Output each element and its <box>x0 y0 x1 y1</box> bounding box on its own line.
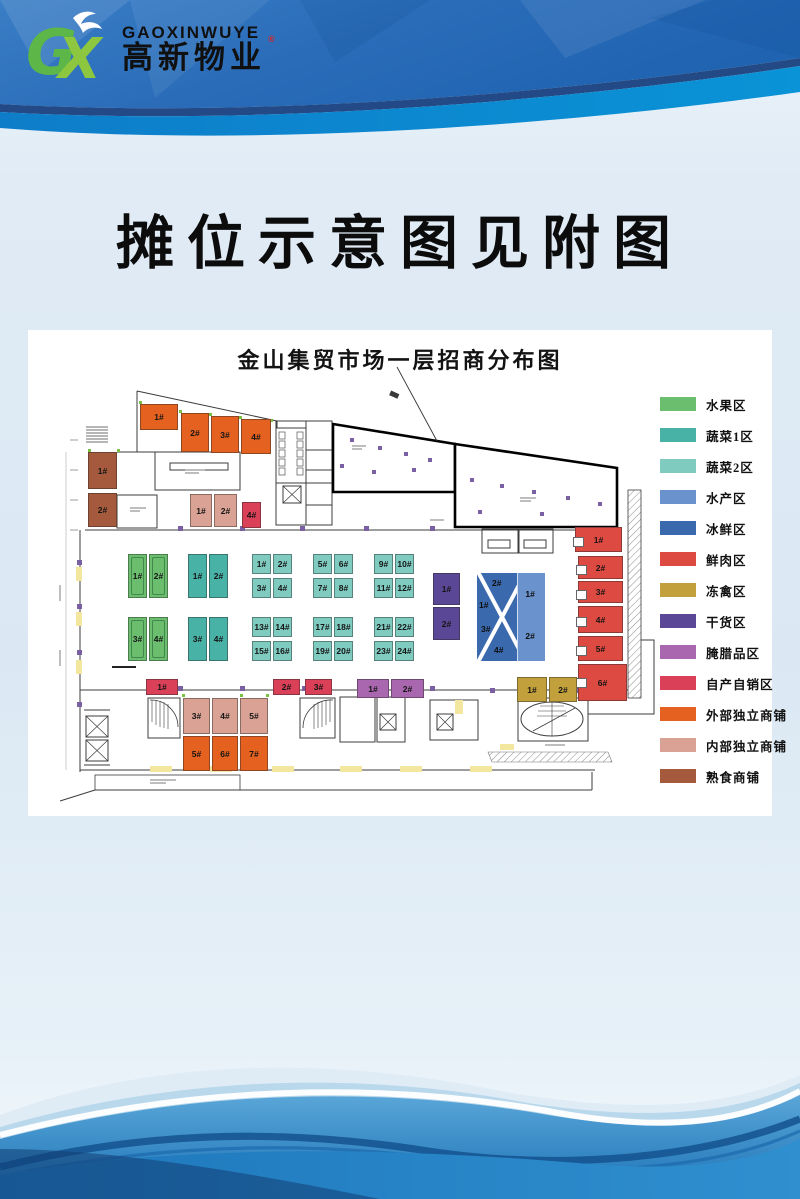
stall-fruit-1: 1# <box>128 554 147 598</box>
legend-label: 冻禽区 <box>706 581 747 600</box>
legend-label: 熟食商铺 <box>706 767 760 786</box>
legend-swatch <box>660 459 696 473</box>
stall-veg2-2: 2# <box>273 554 292 574</box>
stall-veg2-20: 20# <box>334 641 353 661</box>
stall-self-1: 1# <box>146 679 178 695</box>
trademark-mark: ® <box>268 34 280 44</box>
stall-icefresh-1: 1# <box>479 600 488 610</box>
stall-icefresh-4: 4# <box>494 645 503 655</box>
stall-cooked-2: 2# <box>88 493 117 527</box>
stall-ext-1: 1# <box>140 404 178 430</box>
stall-cured-2: 2# <box>391 679 424 698</box>
legend-swatch <box>660 490 696 504</box>
stall-veg2-8: 8# <box>334 578 353 598</box>
legend-swatch <box>660 397 696 411</box>
stall-veg1-3: 3# <box>188 617 207 661</box>
stall-veg2-14: 14# <box>273 617 292 637</box>
stall-icefresh-3: 3# <box>481 624 490 634</box>
stall-int-2: 2# <box>214 494 237 527</box>
legend-label: 自产自销区 <box>706 674 774 693</box>
footer-wave-graphic <box>0 999 800 1199</box>
page-title: 摊位示意图见附图 <box>0 196 800 280</box>
stall-veg2-17: 17# <box>313 617 332 637</box>
stall-veg2-15: 15# <box>252 641 271 661</box>
legend-swatch <box>660 769 696 783</box>
stall-poultry-1: 1# <box>517 677 547 702</box>
legend-item: 外部独立商铺 <box>660 707 787 721</box>
legend-item: 冻禽区 <box>660 583 787 597</box>
legend-label: 冰鲜区 <box>706 519 747 538</box>
stall-int-4: 4# <box>212 698 238 734</box>
legend-label: 水产区 <box>706 488 747 507</box>
legend-item: 水果区 <box>660 397 787 411</box>
legend-item: 自产自销区 <box>660 676 787 690</box>
legend-swatch <box>660 614 696 628</box>
stall-poultry-2: 2# <box>549 677 577 702</box>
svg-text:X: X <box>55 27 104 88</box>
legend-item: 鲜肉区 <box>660 552 787 566</box>
legend: 水果区 蔬菜1区 蔬菜2区 水产区 冰鲜区 鲜肉区 冻禽区 干货区 腌腊品区 自… <box>660 397 787 783</box>
legend-swatch <box>660 738 696 752</box>
stall-ext-5: 5# <box>183 736 210 771</box>
stall-icefresh-2: 2# <box>492 578 501 588</box>
stall-ext-4: 4# <box>241 419 271 454</box>
stall-veg1-2: 2# <box>209 554 228 598</box>
plan-title: 金山集贸市场一层招商分布图 <box>140 343 660 375</box>
stall-meat-6: 6# <box>578 664 627 701</box>
stall-ext-3: 3# <box>211 416 239 453</box>
stall-veg2-6: 6# <box>334 554 353 574</box>
stall-ext-2: 2# <box>181 413 209 452</box>
stall-ext-7: 7# <box>240 736 268 771</box>
legend-swatch <box>660 676 696 690</box>
stall-cured-1: 1# <box>357 679 389 698</box>
legend-swatch <box>660 521 696 535</box>
legend-item: 干货区 <box>660 614 787 628</box>
legend-label: 干货区 <box>706 612 747 631</box>
legend-item: 冰鲜区 <box>660 521 787 535</box>
stall-veg2-4: 4# <box>273 578 292 598</box>
stall-aquatic-1: 1# <box>525 589 534 599</box>
stall-veg2-1: 1# <box>252 554 271 574</box>
legend-swatch <box>660 428 696 442</box>
stall-fruit-3: 3# <box>128 617 147 661</box>
stall-cooked-1: 1# <box>88 452 117 489</box>
legend-swatch <box>660 583 696 597</box>
stall-veg1-4: 4# <box>209 617 228 661</box>
legend-swatch <box>660 645 696 659</box>
stall-veg2-3: 3# <box>252 578 271 598</box>
stall-veg2-12: 12# <box>395 578 414 598</box>
stall-veg2-11: 11# <box>374 578 393 598</box>
stall-fruit-4: 4# <box>149 617 168 661</box>
stall-meat-5: 5# <box>578 636 623 661</box>
stall-veg2-16: 16# <box>273 641 292 661</box>
stall-veg2-24: 24# <box>395 641 414 661</box>
legend-label: 蔬菜1区 <box>706 426 754 445</box>
zone-icefresh: 2# 1# 3# 4# <box>477 573 517 661</box>
logo-mark: G X <box>26 10 112 88</box>
legend-label: 外部独立商铺 <box>706 705 787 724</box>
stall-veg2-13: 13# <box>252 617 271 637</box>
legend-item: 腌腊品区 <box>660 645 787 659</box>
stall-veg2-5: 5# <box>313 554 332 574</box>
stall-veg2-10: 10# <box>395 554 414 574</box>
stall-aquatic-2: 2# <box>525 631 534 641</box>
zone-blue-block: 2# 1# 3# 4# 1# 2# <box>477 573 545 661</box>
stall-dry-2: 2# <box>433 607 460 640</box>
legend-label: 水果区 <box>706 395 747 414</box>
legend-swatch <box>660 707 696 721</box>
stall-self-3: 3# <box>305 679 332 695</box>
legend-item: 蔬菜1区 <box>660 428 787 442</box>
poster: G X GAOXINWUYE 高新物业® 摊位示意图见附图 金山集贸市场一层招商… <box>0 0 800 1199</box>
stall-fruit-2: 2# <box>149 554 168 598</box>
stall-veg2-19: 19# <box>313 641 332 661</box>
stall-int-5: 5# <box>240 698 268 734</box>
stall-meat-1: 1# <box>575 527 622 552</box>
legend-item: 蔬菜2区 <box>660 459 787 473</box>
header-logo: G X GAOXINWUYE 高新物业® <box>26 10 278 88</box>
stall-ext-6: 6# <box>212 736 238 771</box>
stall-meat-4: 4# <box>578 606 623 633</box>
stall-int-3: 3# <box>183 698 210 734</box>
legend-item: 内部独立商铺 <box>660 738 787 752</box>
legend-label: 鲜肉区 <box>706 550 747 569</box>
stall-self-4: 4# <box>242 502 261 528</box>
stall-dry-1: 1# <box>433 573 460 605</box>
stall-int-1: 1# <box>190 494 212 527</box>
zone-aquatic: 1# 2# <box>517 573 545 661</box>
stall-veg2-23: 23# <box>374 641 393 661</box>
stall-self-2: 2# <box>273 679 300 695</box>
legend-item: 水产区 <box>660 490 787 504</box>
stall-veg2-9: 9# <box>374 554 393 574</box>
legend-label: 腌腊品区 <box>706 643 760 662</box>
legend-label: 蔬菜2区 <box>706 457 754 476</box>
stall-veg2-7: 7# <box>313 578 332 598</box>
legend-item: 熟食商铺 <box>660 769 787 783</box>
stall-veg2-18: 18# <box>334 617 353 637</box>
brand-name-cn: 高新物业® <box>122 42 278 75</box>
stall-meat-3: 3# <box>578 581 623 603</box>
legend-swatch <box>660 552 696 566</box>
stall-veg2-22: 22# <box>395 617 414 637</box>
legend-label: 内部独立商铺 <box>706 736 787 755</box>
stall-meat-2: 2# <box>578 556 623 579</box>
stall-veg2-21: 21# <box>374 617 393 637</box>
stall-veg1-1: 1# <box>188 554 207 598</box>
